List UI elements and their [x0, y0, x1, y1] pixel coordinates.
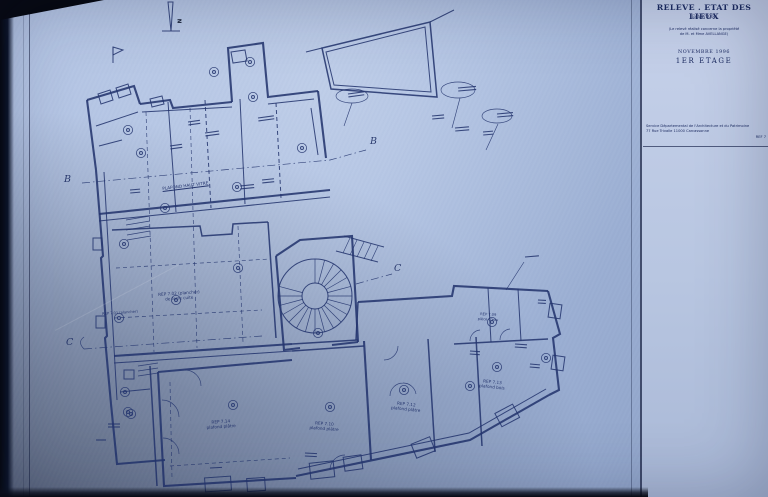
- section-marker-c-right: C: [394, 263, 401, 274]
- west-wing-walls: [93, 108, 292, 404]
- drawing-ref: REF 7: [642, 135, 768, 139]
- room-label-714: REP 7.14 plafond plâtre: [206, 418, 236, 431]
- drawing-date: NOVEMBRE 1996: [642, 50, 766, 55]
- reference-bubbles-and-notes: [96, 57, 551, 468]
- north-label: N: [175, 19, 181, 24]
- southwest-rooms-walls: [111, 360, 296, 492]
- section-marker-b-right: B: [370, 136, 377, 147]
- photo-edge-bottom: [0, 487, 648, 497]
- room-label-709-l2: pièce d'eau: [478, 317, 499, 323]
- southeast-wing-walls: [292, 286, 565, 479]
- section-marker-b-left: B: [64, 174, 71, 185]
- drawing-note-line1: (Le relevé réalisé concerne la propriété: [642, 27, 766, 31]
- drawing-note-line2: de M. et Mme AVELLANGE): [642, 32, 766, 36]
- service-line2: 77 Rue Trivalle 11000 Carcassonne: [642, 129, 768, 133]
- photo-of-floor-plan: N B B C C PLAFOND HAUT VITRE REP 7.02 (p…: [0, 0, 768, 497]
- section-lines: [81, 150, 393, 349]
- flag-icon: [113, 47, 123, 63]
- title-block-rule: [643, 146, 768, 147]
- section-marker-c-left: C: [66, 337, 73, 348]
- photo-edge-left: [0, 0, 14, 497]
- title-block-panel: [640, 0, 768, 497]
- north-arrow-icon: [162, 2, 180, 31]
- drawing-scale: Ech.1/100e: [642, 14, 766, 19]
- drawing-floor: 1ER ETAGE: [642, 57, 766, 65]
- service-line1: Service Départemental de l'Architecture …: [642, 124, 768, 128]
- terrace-outline: [306, 10, 454, 97]
- stair-core: [276, 236, 384, 350]
- room-label-709: REP 7.09 pièce d'eau: [478, 312, 499, 322]
- room-label-710: REP 7.10 plafond plâtre: [309, 420, 339, 433]
